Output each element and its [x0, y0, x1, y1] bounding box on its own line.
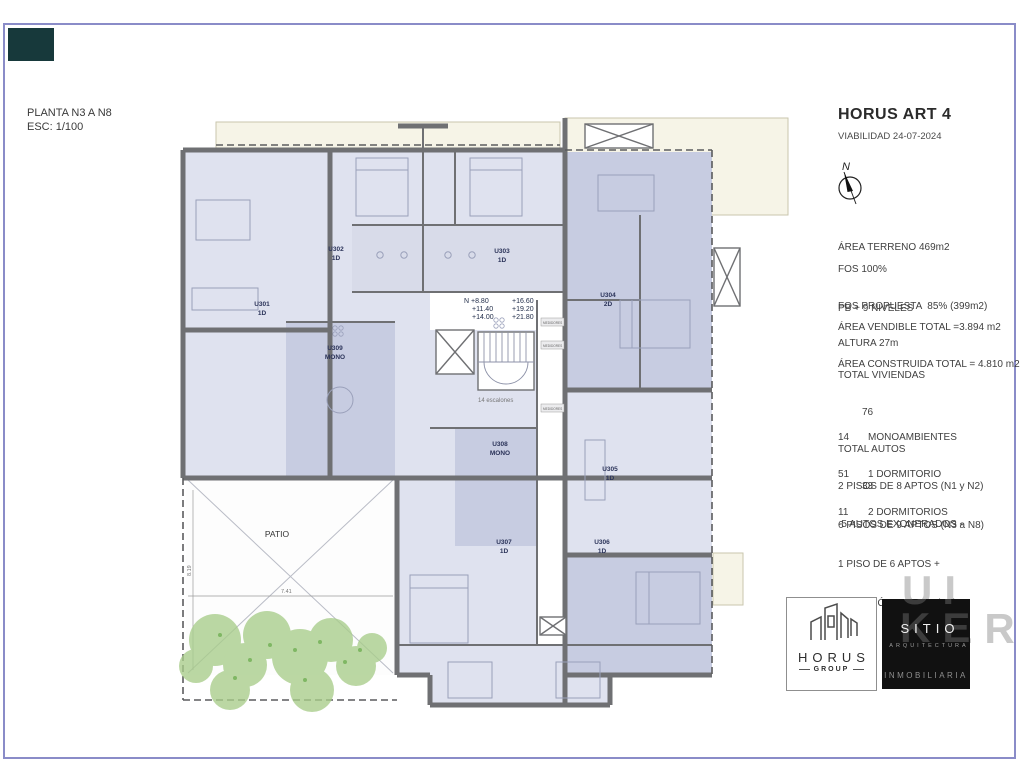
horus-group-row: GROUP [799, 666, 865, 673]
unit-label-u303: U303 [494, 248, 510, 255]
stairs [478, 332, 534, 390]
plan-title-block: PLANTA N3 A N8 ESC: 1/100 [27, 106, 112, 134]
floor-plan: U301 1D U302 1D U303 1D U304 2D U305 1D … [168, 105, 800, 723]
svg-text:+14.00: +14.00 [472, 314, 494, 321]
sitio-logo: UI KER SITIO ARQUITECTURA INMOBILIARIA [882, 599, 970, 689]
unit-label-u305: U305 [602, 466, 618, 473]
svg-text:MEDIDORES: MEDIDORES [543, 344, 562, 348]
north-arrow-icon: N [830, 158, 872, 210]
svg-text:MEDIDORES: MEDIDORES [543, 407, 562, 411]
unit-label-u309: U309 [327, 345, 343, 352]
svg-text:+11.40: +11.40 [472, 306, 493, 313]
svg-text:MONO: MONO [490, 450, 510, 457]
unit-mix-row: 14 MONOAMBIENTES [838, 432, 957, 445]
plan-scale-text: ESC: 1/100 [27, 120, 112, 134]
svg-text:1D: 1D [258, 310, 267, 317]
project-title: HORUS ART 4 [838, 106, 951, 124]
svg-text:1D: 1D [332, 255, 341, 262]
unit-label-u307: U307 [496, 539, 512, 546]
horus-building-icon [803, 598, 861, 648]
project-subtitle: VIABILIDAD 24-07-2024 [838, 131, 942, 142]
duct-shaft-bottom [540, 617, 566, 635]
sitio-logo-text: SITIO [882, 621, 970, 636]
horus-group-logo: HORUS GROUP [786, 597, 877, 691]
svg-text:+16.60: +16.60 [512, 298, 534, 305]
svg-text:MEDIDORES: MEDIDORES [543, 321, 562, 325]
svg-text:N +8.80: N +8.80 [464, 298, 489, 305]
svg-text:1D: 1D [598, 548, 607, 555]
corner-color-chip [8, 28, 54, 61]
patio-dim-height: 8.19 [187, 565, 193, 576]
horus-group-text: GROUP [814, 666, 850, 673]
stairs-note: 14 escalones [478, 398, 513, 404]
vent-shaft-top [585, 124, 653, 148]
horus-logo-text: HORUS [793, 650, 870, 665]
sheet: PLANTA N3 A N8 ESC: 1/100 [0, 0, 1024, 768]
patio-dim-width: 7.41 [281, 589, 292, 595]
unit-label-u304: U304 [600, 292, 616, 299]
unit-label-u308: U308 [492, 441, 508, 448]
plan-title-text: PLANTA N3 A N8 [27, 106, 112, 120]
unit-label-u301: U301 [254, 301, 270, 308]
svg-text:MONO: MONO [325, 354, 345, 361]
elevator [436, 330, 474, 374]
svg-text:+19.20: +19.20 [512, 306, 534, 313]
north-letter: N [842, 161, 850, 173]
svg-text:1D: 1D [500, 548, 509, 555]
svg-text:2D: 2D [604, 301, 613, 308]
patio-label: PATIO [265, 529, 290, 539]
svg-text:1D: 1D [606, 475, 615, 482]
vent-shaft-right [714, 248, 740, 306]
unit-label-u306: U306 [594, 539, 610, 546]
sitio-inmobiliaria-text: INMOBILIARIA [882, 671, 970, 680]
sitio-arquitectura-text: ARQUITECTURA [882, 643, 970, 649]
svg-text:+21.80: +21.80 [512, 314, 534, 321]
unit-label-u302: U302 [328, 246, 344, 253]
svg-text:1D: 1D [498, 257, 507, 264]
